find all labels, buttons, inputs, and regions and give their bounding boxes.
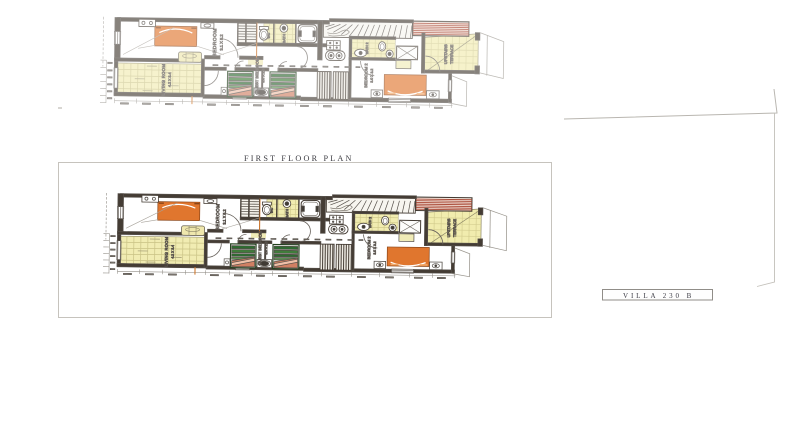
svg-text:FIRST FLOOR PLAN: FIRST FLOOR PLAN — [244, 154, 354, 163]
svg-text:VILLA 230 B: VILLA 230 B — [623, 292, 694, 300]
